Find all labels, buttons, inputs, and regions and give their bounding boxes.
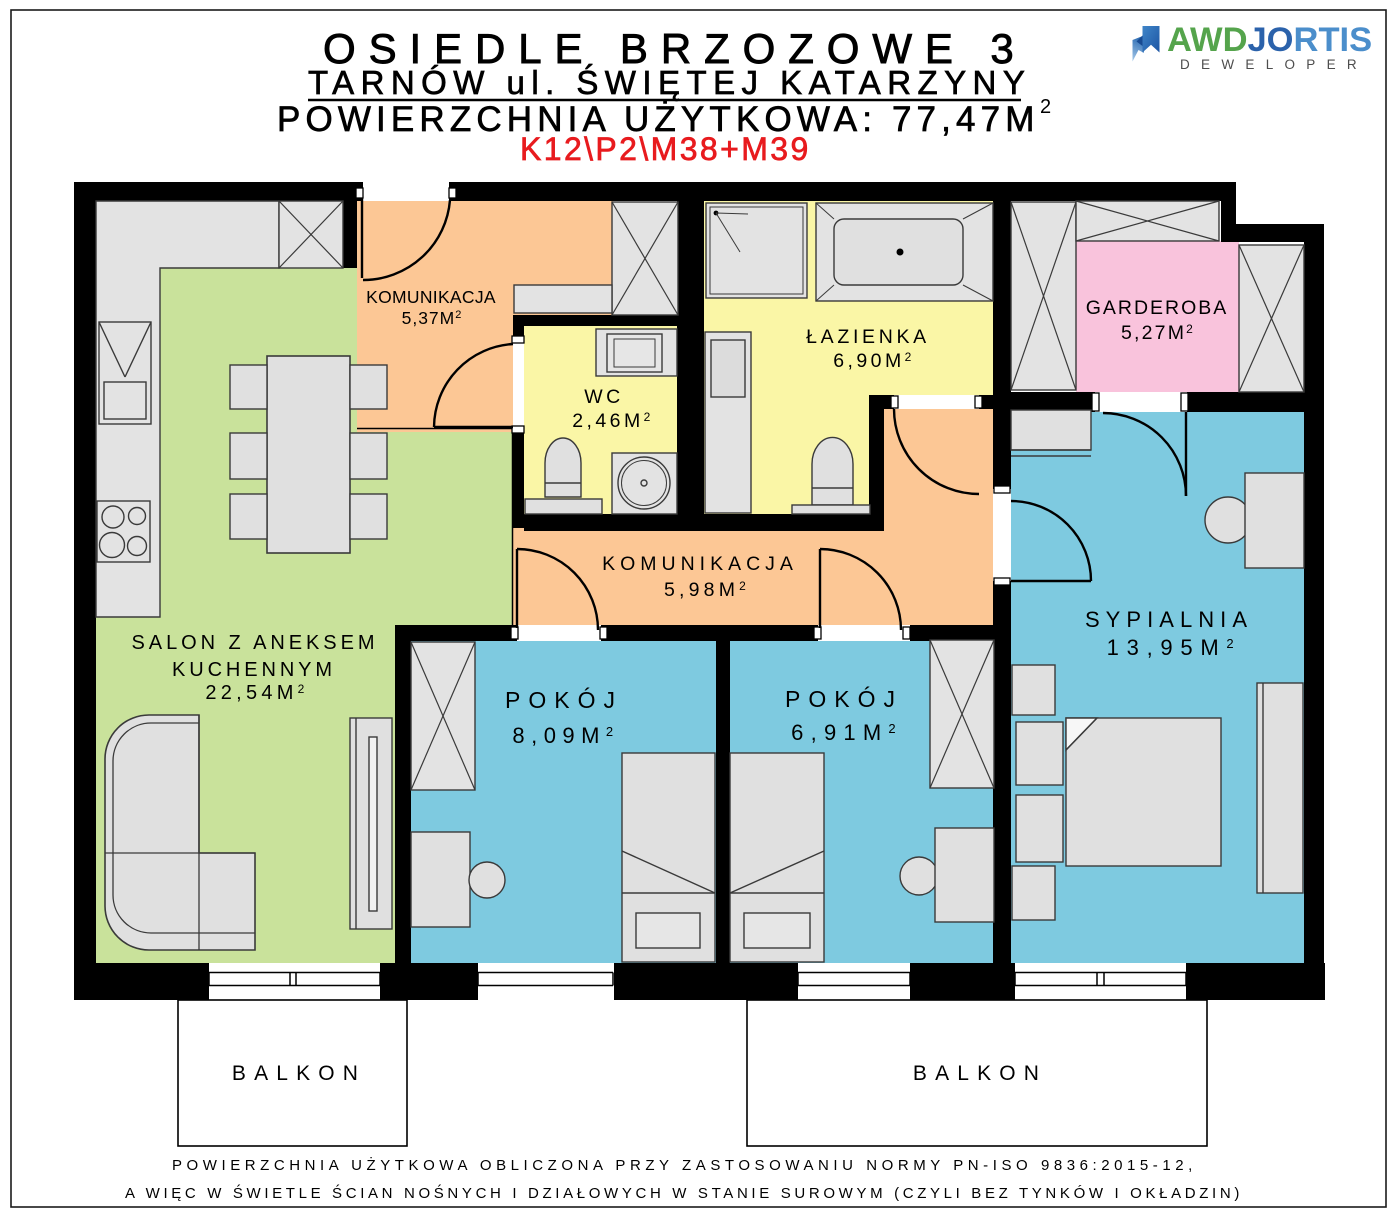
svg-text:BALKON: BALKON — [232, 1062, 366, 1085]
svg-text:SALON Z ANEKSEM: SALON Z ANEKSEM — [132, 632, 379, 654]
svg-text:DEWELOPER: DEWELOPER — [1180, 57, 1368, 72]
svg-text:KOMUNIKACJA: KOMUNIKACJA — [602, 553, 798, 575]
svg-text:8,09M2: 8,09M2 — [512, 723, 619, 748]
svg-text:22,54M2: 22,54M2 — [205, 682, 308, 704]
svg-text:5,27M2: 5,27M2 — [1121, 322, 1195, 344]
svg-text:ŁAZIENKA: ŁAZIENKA — [806, 326, 930, 348]
svg-text:2,46M2: 2,46M2 — [572, 410, 654, 432]
svg-text:AWDJORTIS: AWDJORTIS — [1167, 21, 1372, 59]
svg-text:SYPIALNIA: SYPIALNIA — [1085, 607, 1253, 632]
svg-text:5,98M2: 5,98M2 — [664, 579, 750, 601]
svg-text:BALKON: BALKON — [913, 1062, 1047, 1085]
svg-text:POWIERZCHNIA UŻYTKOWA OBLICZON: POWIERZCHNIA UŻYTKOWA OBLICZONA PRZY ZAS… — [172, 1156, 1197, 1174]
svg-text:A WIĘC W ŚWIETLE ŚCIAN NOŚNYCH: A WIĘC W ŚWIETLE ŚCIAN NOŚNYCH I DZIAŁOW… — [125, 1184, 1243, 1202]
svg-text:5,37M2: 5,37M2 — [402, 308, 463, 328]
svg-text:GARDEROBA: GARDEROBA — [1086, 297, 1229, 319]
svg-text:13,95M2: 13,95M2 — [1107, 635, 1242, 660]
svg-text:6,91M2: 6,91M2 — [791, 720, 903, 745]
svg-text:TARNÓW ul. ŚWIĘTEJ KATARZYNY: TARNÓW ul. ŚWIĘTEJ KATARZYNY — [308, 63, 1031, 101]
svg-text:POKÓJ: POKÓJ — [505, 687, 623, 713]
svg-text:POKÓJ: POKÓJ — [785, 686, 903, 712]
svg-text:KOMUNIKACJA: KOMUNIKACJA — [366, 287, 496, 307]
svg-text:6,90M2: 6,90M2 — [833, 350, 915, 372]
svg-text:WC: WC — [584, 386, 624, 408]
svg-text:KUCHENNYM: KUCHENNYM — [172, 659, 336, 681]
svg-text:2: 2 — [1040, 96, 1051, 118]
svg-text:K12\P2\M38+M39: K12\P2\M38+M39 — [520, 131, 811, 167]
